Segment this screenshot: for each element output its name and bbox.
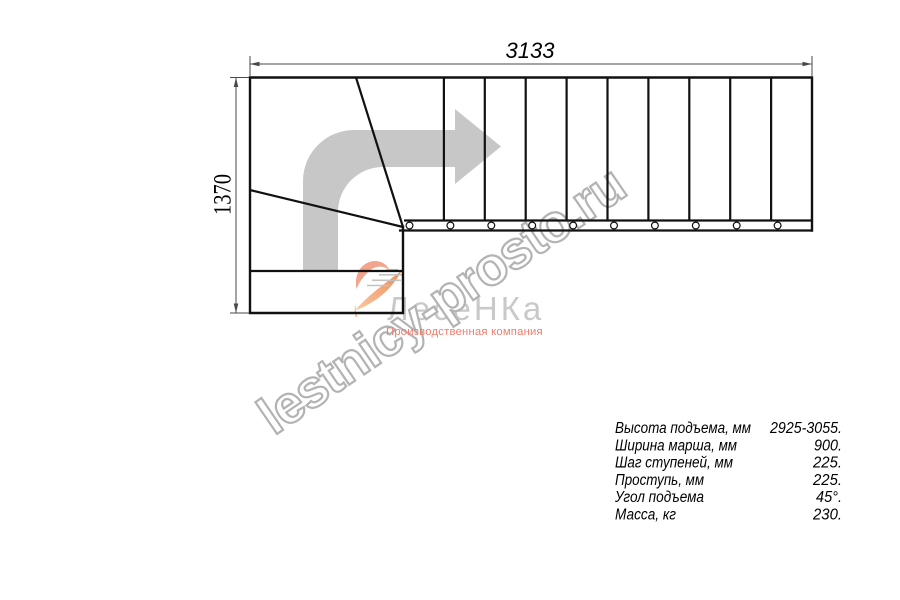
- svg-text:Проступь, мм: Проступь, мм: [615, 472, 704, 489]
- svg-text:Производственная компания: Производственная компания: [386, 326, 543, 338]
- svg-text:Ширина марша, мм: Ширина марша, мм: [615, 437, 737, 454]
- svg-text:225.: 225.: [812, 455, 842, 472]
- svg-text:225.: 225.: [812, 472, 842, 489]
- svg-text:2925-3055.: 2925-3055.: [769, 420, 842, 437]
- svg-text:Угол подъема: Угол подъема: [614, 489, 704, 506]
- svg-text:Шаг ступеней, мм: Шаг ступеней, мм: [615, 455, 733, 472]
- svg-text:3133: 3133: [506, 38, 556, 63]
- svg-text:230.: 230.: [812, 507, 842, 524]
- svg-text:1370: 1370: [210, 174, 237, 215]
- svg-text:Масса, кг: Масса, кг: [615, 507, 676, 524]
- svg-text:45°.: 45°.: [816, 489, 842, 506]
- svg-text:Высота подъема, мм: Высота подъема, мм: [615, 420, 751, 437]
- svg-text:900.: 900.: [814, 437, 842, 454]
